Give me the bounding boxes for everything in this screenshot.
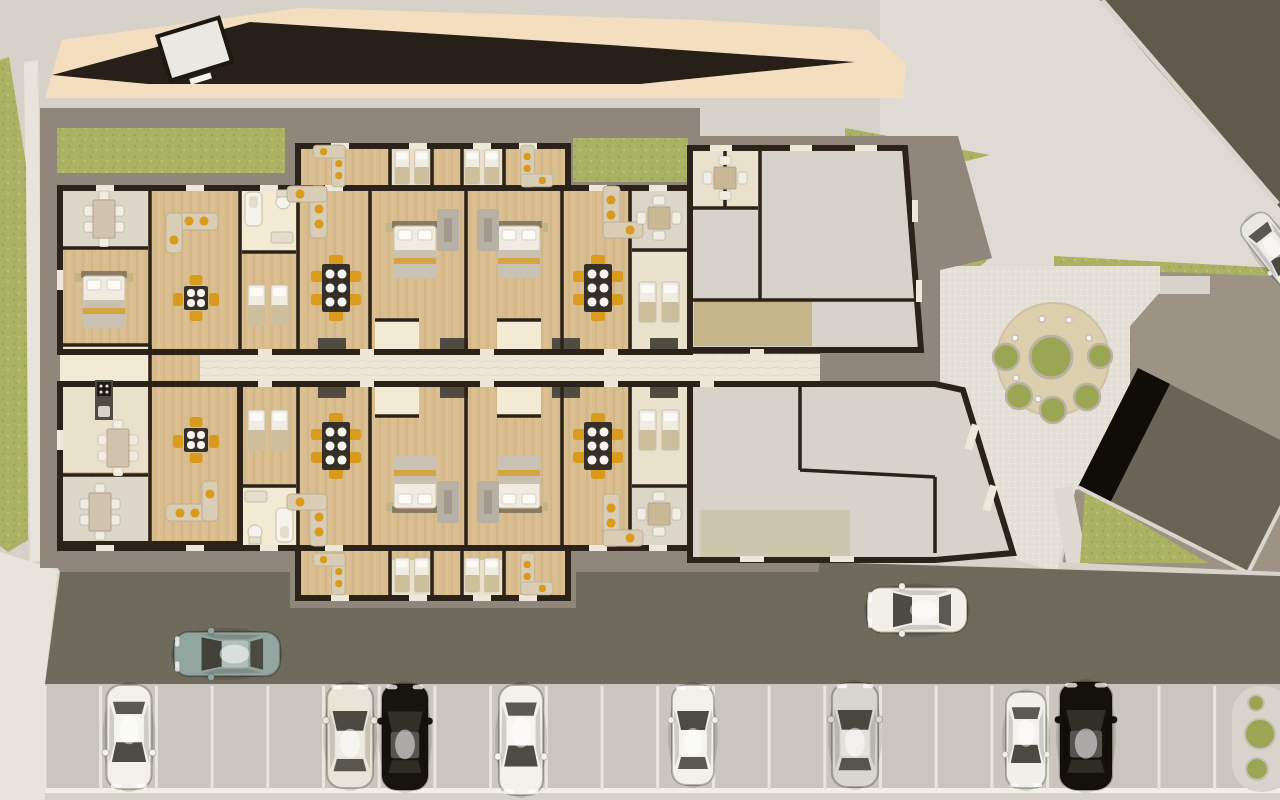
island-bush xyxy=(1248,695,1264,711)
stall-line xyxy=(433,686,436,790)
grass-strip-top-left-over xyxy=(57,128,285,173)
patio-bush xyxy=(993,344,1019,370)
grass-strip-top-center-over xyxy=(573,138,688,182)
car-parked-champagne xyxy=(322,681,377,791)
right-wing-tan-pad xyxy=(694,300,812,346)
patio-light xyxy=(1012,335,1018,341)
right-wing-bottom-pad xyxy=(700,510,850,560)
stall-line xyxy=(99,686,102,790)
car-sedan-teal-driveway xyxy=(171,628,283,681)
patio-bush xyxy=(1040,397,1066,423)
car-parked-white-3 xyxy=(668,682,718,788)
car-sedan-white-driveway xyxy=(864,583,970,637)
stall-line xyxy=(601,686,604,790)
patio-light xyxy=(1086,335,1092,341)
stall-line xyxy=(211,686,214,790)
bath-u6b xyxy=(497,386,541,416)
car-parked-white-1 xyxy=(102,682,156,792)
car-parked-white-small xyxy=(1002,689,1050,791)
stall-line xyxy=(1158,686,1161,790)
stall-line xyxy=(1213,686,1216,790)
patio-bush xyxy=(1074,384,1100,410)
island-bush xyxy=(1245,719,1275,749)
car-parked-silver-van xyxy=(827,680,882,790)
stall-line xyxy=(935,686,938,790)
stall-line xyxy=(823,686,826,790)
site-plan-svg xyxy=(0,0,1280,800)
patio-light xyxy=(1035,396,1041,402)
central-corridor xyxy=(200,352,820,384)
bath-u5b xyxy=(375,386,419,416)
stall-line xyxy=(768,686,771,790)
round-patio xyxy=(993,303,1112,423)
island-bush xyxy=(1246,758,1268,780)
car-parked-black xyxy=(377,681,432,793)
patio-light xyxy=(1066,317,1072,323)
car-parked-black-suv xyxy=(1055,679,1117,793)
site-plan-canvas xyxy=(0,0,1280,800)
car-parked-white-2 xyxy=(495,682,548,798)
apartment-building xyxy=(40,108,1013,608)
bath-u5 xyxy=(375,320,419,350)
stall-line xyxy=(656,686,659,790)
patio-bush xyxy=(1006,383,1032,409)
patio-light xyxy=(1013,375,1019,381)
stall-line xyxy=(489,686,492,790)
patio-center-bush xyxy=(1030,336,1072,378)
stall-line xyxy=(266,686,269,790)
stall-line xyxy=(990,686,993,790)
patio-bush xyxy=(1088,344,1112,368)
stall-line xyxy=(44,686,47,790)
bath-u6 xyxy=(497,320,541,350)
patio-light xyxy=(1039,316,1045,322)
